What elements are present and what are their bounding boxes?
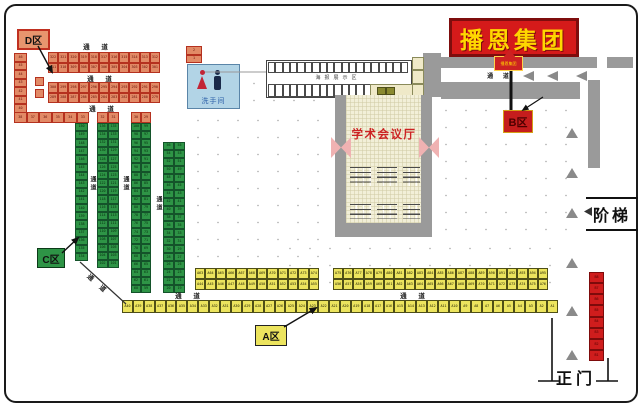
seat-cell: A72 xyxy=(288,268,298,279)
seat-cell: 93 xyxy=(141,147,151,155)
seat-cell: A86 xyxy=(446,268,456,279)
seat-cell: 309 xyxy=(68,63,78,74)
zone-d-row-1: 3223213203193183173163153143133123113103… xyxy=(48,52,160,73)
seat-cell: 99 xyxy=(141,123,151,131)
aisle-label-c3: 通道 xyxy=(154,196,163,236)
seat-cell: 304 xyxy=(119,63,129,74)
seat-cell: A55 xyxy=(309,279,319,290)
seat-cell: 279 xyxy=(150,93,160,104)
seat-cell: 292 xyxy=(129,82,139,93)
seat-cell: A74 xyxy=(309,268,319,279)
seat-cell: 305 xyxy=(109,63,119,74)
seat-cell: A2 xyxy=(536,300,547,313)
seat-cell: 294 xyxy=(109,82,119,93)
seat-cell: 111 xyxy=(108,220,119,228)
zone-a-upper-row-2: A44A45A46A47A48A49A50A51A52A53A54A55 xyxy=(195,279,319,290)
seat-cell: 35 xyxy=(174,221,185,229)
seat-cell: A27 xyxy=(264,300,275,313)
seat-cell: A10 xyxy=(449,300,460,313)
seat-cell: 30 xyxy=(163,245,174,253)
seat-cell: 78 xyxy=(131,212,141,220)
seat-cell: 129 xyxy=(108,147,119,155)
seat-cell: 286 xyxy=(79,93,89,104)
seat-cell: 43 xyxy=(14,79,27,88)
seat-cell: 127 xyxy=(108,155,119,163)
seat-cell: A11 xyxy=(438,300,449,313)
seat-cell: 322 xyxy=(48,52,58,63)
seat-cell: A8 xyxy=(471,300,482,313)
seat-cell: 97 xyxy=(141,131,151,139)
seat-cell: A3 xyxy=(525,300,536,313)
seat-cell: 50 xyxy=(163,166,174,174)
aisle-label-a2: 通 道 xyxy=(385,290,445,300)
seat-cell: A71 xyxy=(487,279,497,290)
seat-cell: 26 xyxy=(163,261,174,269)
seat-cell: A59 xyxy=(364,279,374,290)
seat-cell: 112 xyxy=(97,220,108,228)
seat-cell: A20 xyxy=(340,300,351,313)
seat-cell: 117 xyxy=(108,195,119,203)
zone-b-label: B区 xyxy=(503,110,533,133)
seat-cell: A70 xyxy=(267,268,277,279)
seat-cell xyxy=(283,84,290,97)
wall-block xyxy=(423,53,441,97)
seat-cell: B6 xyxy=(589,294,604,305)
zone-d-single-seat xyxy=(35,89,44,98)
hall-seat-block xyxy=(403,204,420,219)
seat-cell: 30 xyxy=(131,112,141,123)
restroom-label: 洗手间 xyxy=(188,96,239,106)
seat-cell: A61 xyxy=(384,279,394,290)
seat-cell: A22 xyxy=(318,300,329,313)
seat-cell: 133 xyxy=(108,131,119,139)
aisle-label-c1: 通道 xyxy=(88,176,97,216)
seat-cell: 76 xyxy=(131,220,141,228)
seat-cell: 31 xyxy=(108,112,119,123)
seat-cell: 25 xyxy=(174,261,185,269)
company-booth-marker: 播恩集团 xyxy=(494,56,523,71)
seat-cell: A13 xyxy=(416,300,427,313)
seat-cell: 98 xyxy=(131,131,141,139)
seat-cell: A81 xyxy=(394,268,404,279)
seat-cell: 73 xyxy=(141,228,151,236)
seat-cell: 87 xyxy=(141,172,151,180)
seat-cell: 37 xyxy=(174,214,185,222)
seat-cell xyxy=(356,62,363,73)
seat-cell: 42 xyxy=(14,87,27,96)
seat-cell: 282 xyxy=(119,93,129,104)
seat-cell: A63 xyxy=(405,279,415,290)
seat-cell: 287 xyxy=(68,93,78,104)
seat-cell: A40 xyxy=(122,300,133,313)
seats-above-restroom: 21 xyxy=(186,46,202,63)
seat-cell xyxy=(364,62,371,73)
seat-cell: 32 xyxy=(97,112,108,123)
seat-cell: A60 xyxy=(374,279,384,290)
seat-cell: 131 xyxy=(108,139,119,147)
male-icon xyxy=(214,70,221,90)
seat-cell: A49 xyxy=(247,279,257,290)
seat-cell xyxy=(334,62,341,73)
seat-cell xyxy=(379,62,386,73)
seat-cell xyxy=(320,84,327,97)
seat-cell: 31 xyxy=(174,237,185,245)
seat-cell xyxy=(290,62,297,73)
seat-cell: 82 xyxy=(131,196,141,204)
seat-cell: 283 xyxy=(109,93,119,104)
zone-d-bottom-row: 383736353433 xyxy=(14,112,89,123)
seat-cell: A1 xyxy=(547,300,558,313)
seat-cell xyxy=(386,87,395,95)
seat-cell: 74 xyxy=(131,228,141,236)
seat-cell: A29 xyxy=(242,300,253,313)
seat-cell: 47 xyxy=(174,174,185,182)
seat-cell: 103 xyxy=(108,252,119,260)
seat-cell: A76 xyxy=(343,268,353,279)
seat-cell: 118 xyxy=(97,195,108,203)
zone-a-label: A区 xyxy=(255,325,287,346)
seat-cell xyxy=(305,62,312,73)
hall-left-wall xyxy=(335,95,346,237)
seat-cell: 150 xyxy=(75,123,88,131)
zone-c-column-1: 1501491481471461451441431421411401391381… xyxy=(75,123,88,261)
seat-cell: 53 xyxy=(174,150,185,158)
seat-cell: 91 xyxy=(141,155,151,163)
seat-cell xyxy=(320,62,327,73)
main-gate-label: 正门 xyxy=(552,365,600,389)
display-area-label: 海报展示区 xyxy=(268,74,408,81)
seat-cell xyxy=(393,62,400,73)
seat-cell xyxy=(386,62,393,73)
seat-cell: 293 xyxy=(119,82,129,93)
wall-middle xyxy=(441,82,580,99)
seat-cell: A58 xyxy=(353,279,363,290)
venue-floor-plan: 播恩集团 播恩集团 B区 通 道 海报展示区 21 洗手间 学术会议厅 D区 xyxy=(0,0,640,405)
seat-cell: 105 xyxy=(108,244,119,252)
seat-cell: 302 xyxy=(140,63,150,74)
seat-cell xyxy=(327,62,334,73)
seat-cell: 34 xyxy=(163,229,174,237)
seat-cell: A23 xyxy=(307,300,318,313)
stairs-label: 阶梯 xyxy=(586,197,638,231)
seat-cell: 35 xyxy=(52,112,65,123)
seat-cell: 84 xyxy=(131,188,141,196)
seat-cell: 121 xyxy=(108,179,119,187)
seat-cell: 106 xyxy=(97,244,108,252)
zone-a-upper-row-1: A63A64A65A66A67A68A69A70A71A72A73A74 xyxy=(195,268,319,279)
seat-cell: 130 xyxy=(97,147,108,155)
seat-cell xyxy=(377,87,386,95)
seat-cell: A73 xyxy=(298,268,308,279)
seat-cell xyxy=(349,62,356,73)
seat-cell xyxy=(412,70,424,83)
seat-cell: 23 xyxy=(174,269,185,277)
seat-cell: A17 xyxy=(373,300,384,313)
seat-cell xyxy=(290,84,297,97)
seat-cell: A69 xyxy=(466,279,476,290)
seat-cell: A39 xyxy=(133,300,144,313)
hall-seat-block xyxy=(377,167,397,186)
seat-cell: 115 xyxy=(108,204,119,212)
seat-cell: 318 xyxy=(89,52,99,63)
seat-cell: A26 xyxy=(275,300,286,313)
seat-cell: 94 xyxy=(131,147,141,155)
seat-cell: A92 xyxy=(507,268,517,279)
seat-cell: 22 xyxy=(163,277,174,285)
seat-cell: 308 xyxy=(79,63,89,74)
seat-cell: A7 xyxy=(482,300,493,313)
seat-cell: A82 xyxy=(405,268,415,279)
seat-cell: 39 xyxy=(174,206,185,214)
seat-cell: 72 xyxy=(131,236,141,244)
seat-cell: 122 xyxy=(97,179,108,187)
seat-cell: 281 xyxy=(129,93,139,104)
seat-cell: A35 xyxy=(176,300,187,313)
seat-cell: 71 xyxy=(141,236,151,244)
seat-cell: 299 xyxy=(58,82,68,93)
seat-cell: 64 xyxy=(131,269,141,277)
hall-bottom-wall xyxy=(335,223,432,237)
seat-cell xyxy=(268,62,275,73)
seat-cell: 96 xyxy=(131,139,141,147)
seat-cell: 317 xyxy=(99,52,109,63)
seat-cell: 102 xyxy=(97,260,108,268)
seat-cell: 92 xyxy=(131,155,141,163)
female-icon xyxy=(197,70,207,89)
seat-cell: A19 xyxy=(351,300,362,313)
seat-cell: A15 xyxy=(394,300,405,313)
seat-cell: 284 xyxy=(99,93,109,104)
seat-cell: 29 xyxy=(174,245,185,253)
seat-cell: 285 xyxy=(89,93,99,104)
seat-cell: 2 xyxy=(186,46,202,55)
seat-cell: A84 xyxy=(425,268,435,279)
hall-seat-block xyxy=(350,204,371,219)
seat-cell: 45 xyxy=(174,182,185,190)
seat-cell: 291 xyxy=(140,82,150,93)
seat-cell: A62 xyxy=(394,279,404,290)
zone-c-column-2: 1361351341331321311301291281271261251241… xyxy=(97,123,119,268)
seat-cell: 126 xyxy=(97,163,108,171)
seat-cell: 75 xyxy=(141,220,151,228)
seat-cell xyxy=(312,84,319,97)
seat-cell: 36 xyxy=(163,221,174,229)
seat-cell: A24 xyxy=(296,300,307,313)
seat-cell xyxy=(275,84,282,97)
seat-cell: 56 xyxy=(163,142,174,150)
zone-a-upper-row-3: A75A76A77A78A79A80A81A82A83A84A85A86A87A… xyxy=(333,268,548,279)
seat-cell: 29 xyxy=(141,112,151,123)
seat-cell: 300 xyxy=(48,82,58,93)
seat-cell: A75 xyxy=(528,279,538,290)
hall-seat-block xyxy=(350,167,371,186)
seat-cell: 135 xyxy=(108,123,119,131)
seat-cell: 113 xyxy=(108,212,119,220)
seat-cell: 138 xyxy=(75,220,88,228)
seat-cell: A4 xyxy=(514,300,525,313)
seat-cell: A93 xyxy=(517,268,527,279)
aisle-label-a1: 通 道 xyxy=(160,290,220,300)
seat-cell: 310 xyxy=(58,63,68,74)
seat-cell: A32 xyxy=(209,300,220,313)
seat-cell: A68 xyxy=(456,279,466,290)
seat-cell: 141 xyxy=(75,196,88,204)
seat-cell: 297 xyxy=(79,82,89,93)
exhibition-side-strip xyxy=(412,57,424,97)
seat-cell: 100 xyxy=(131,123,141,131)
seat-cell: 61 xyxy=(141,277,151,285)
seat-cell: 42 xyxy=(163,198,174,206)
seat-cell: 311 xyxy=(48,63,58,74)
hall-title: 学术会议厅 xyxy=(348,126,420,142)
seat-cell: A9 xyxy=(460,300,471,313)
seat-cell: 32 xyxy=(163,237,174,245)
seat-cell: A72 xyxy=(497,279,507,290)
seat-cell: B1 xyxy=(589,350,604,361)
seat-cell: A87 xyxy=(456,268,466,279)
seat-cell: A63 xyxy=(195,268,205,279)
seat-cell: 66 xyxy=(131,261,141,269)
seat-cell: 1 xyxy=(186,55,202,64)
seat-cell: A44 xyxy=(195,279,205,290)
seat-cell: A38 xyxy=(144,300,155,313)
seat-cell: 46 xyxy=(163,182,174,190)
seat-cell: 34 xyxy=(64,112,77,123)
seat-cell: A54 xyxy=(298,279,308,290)
seat-cell: A77 xyxy=(353,268,363,279)
seat-cell: B8 xyxy=(589,272,604,283)
zone-c-label: C区 xyxy=(37,248,65,268)
seat-cell: 28 xyxy=(163,253,174,261)
seat-cell: 43 xyxy=(174,190,185,198)
zone-d-pair: 3029 xyxy=(131,112,151,123)
seat-cell: A65 xyxy=(425,279,435,290)
seat-cell: 38 xyxy=(163,214,174,222)
seat-cell: A67 xyxy=(446,279,456,290)
seat-cell: 290 xyxy=(150,82,160,93)
seat-cell: A5 xyxy=(503,300,514,313)
seat-cell: 38 xyxy=(14,112,27,123)
seat-cell: A91 xyxy=(497,268,507,279)
seat-cell: 27 xyxy=(174,253,185,261)
seat-cell: A30 xyxy=(231,300,242,313)
seat-cell xyxy=(35,89,44,98)
zone-d-pair: 3231 xyxy=(97,112,119,123)
seat-cell: A51 xyxy=(267,279,277,290)
seat-cell: 132 xyxy=(97,139,108,147)
seat-cell: 296 xyxy=(89,82,99,93)
seat-cell: A88 xyxy=(466,268,476,279)
seat-cell: 45 xyxy=(14,62,27,71)
seat-cell: 136 xyxy=(97,123,108,131)
seat-cell: A46 xyxy=(216,279,226,290)
seat-cell: A70 xyxy=(476,279,486,290)
seat-cell: 24 xyxy=(163,269,174,277)
seat-cell: 41 xyxy=(174,198,185,206)
seat-cell: 107 xyxy=(108,236,119,244)
seat-cell: 70 xyxy=(131,244,141,252)
zone-d-row-2: 3002992982972962952942932922912902892882… xyxy=(48,82,160,103)
seat-cell: 301 xyxy=(150,63,160,74)
seat-cell: 46 xyxy=(14,53,27,62)
seat-cell: 44 xyxy=(163,190,174,198)
seat-cell xyxy=(283,62,290,73)
seat-cell: 104 xyxy=(97,252,108,260)
seat-cell: B2 xyxy=(589,339,604,350)
seat-cell: 21 xyxy=(174,277,185,285)
seat-cell: A67 xyxy=(236,268,246,279)
seat-cell: 108 xyxy=(97,236,108,244)
seat-cell: 123 xyxy=(108,171,119,179)
seat-cell: 298 xyxy=(68,82,78,93)
seat-cell: B5 xyxy=(589,305,604,316)
seat-cell: 79 xyxy=(141,204,151,212)
wall-top-right xyxy=(607,57,633,68)
zone-a-long-row: A40A39A38A37A36A35A34A33A32A31A30A29A28A… xyxy=(122,300,558,313)
seat-cell: A48 xyxy=(236,279,246,290)
seat-cell xyxy=(412,57,424,70)
seat-cell: 101 xyxy=(108,260,119,268)
seat-cell: 33 xyxy=(174,229,185,237)
seat-cell: 144 xyxy=(75,172,88,180)
seat-cell: A85 xyxy=(435,268,445,279)
seat-cell: A56 xyxy=(333,279,343,290)
seat-cell: A76 xyxy=(538,279,548,290)
seat-cell: A68 xyxy=(247,268,257,279)
seat-cell: 134 xyxy=(97,131,108,139)
seat-cell: 316 xyxy=(109,52,119,63)
seat-cell: A21 xyxy=(329,300,340,313)
seat-cell: A50 xyxy=(257,279,267,290)
seat-cell: 65 xyxy=(141,261,151,269)
seat-cell: 128 xyxy=(97,155,108,163)
exhibition-booths-top-row xyxy=(268,62,408,73)
seat-cell: A64 xyxy=(415,279,425,290)
seat-cell: A78 xyxy=(364,268,374,279)
seat-cell: A73 xyxy=(507,279,517,290)
seat-cell: 321 xyxy=(58,52,68,63)
seat-cell: A74 xyxy=(517,279,527,290)
seat-cell: A28 xyxy=(253,300,264,313)
seat-cell: A31 xyxy=(220,300,231,313)
seat-cell: 37 xyxy=(27,112,40,123)
seat-cell: 60 xyxy=(131,285,141,293)
seat-cell: A75 xyxy=(333,268,343,279)
seat-cell: 145 xyxy=(75,164,88,172)
seat-cell: 139 xyxy=(75,212,88,220)
seat-cell: 140 xyxy=(75,204,88,212)
seat-cell: 40 xyxy=(163,206,174,214)
seat-cell: 63 xyxy=(141,269,151,277)
seat-cell: A12 xyxy=(427,300,438,313)
seat-cell: 52 xyxy=(163,158,174,166)
seat-cell xyxy=(305,84,312,97)
company-sign: 播恩集团 xyxy=(449,18,579,57)
seat-cell: A66 xyxy=(435,279,445,290)
seat-cell: 83 xyxy=(141,188,151,196)
seat-cell: 320 xyxy=(68,52,78,63)
seat-cell: 120 xyxy=(97,187,108,195)
seat-cell: 109 xyxy=(108,228,119,236)
zone-c-column-3: 1009998979695949392919089888786858483828… xyxy=(131,123,151,293)
seat-cell: A53 xyxy=(288,279,298,290)
seat-cell: A25 xyxy=(285,300,296,313)
seat-cell: 33 xyxy=(77,112,90,123)
seat-cell: B4 xyxy=(589,317,604,328)
seat-cell: 114 xyxy=(97,212,108,220)
seat-cell: 124 xyxy=(97,171,108,179)
seat-cell: 44 xyxy=(14,70,27,79)
